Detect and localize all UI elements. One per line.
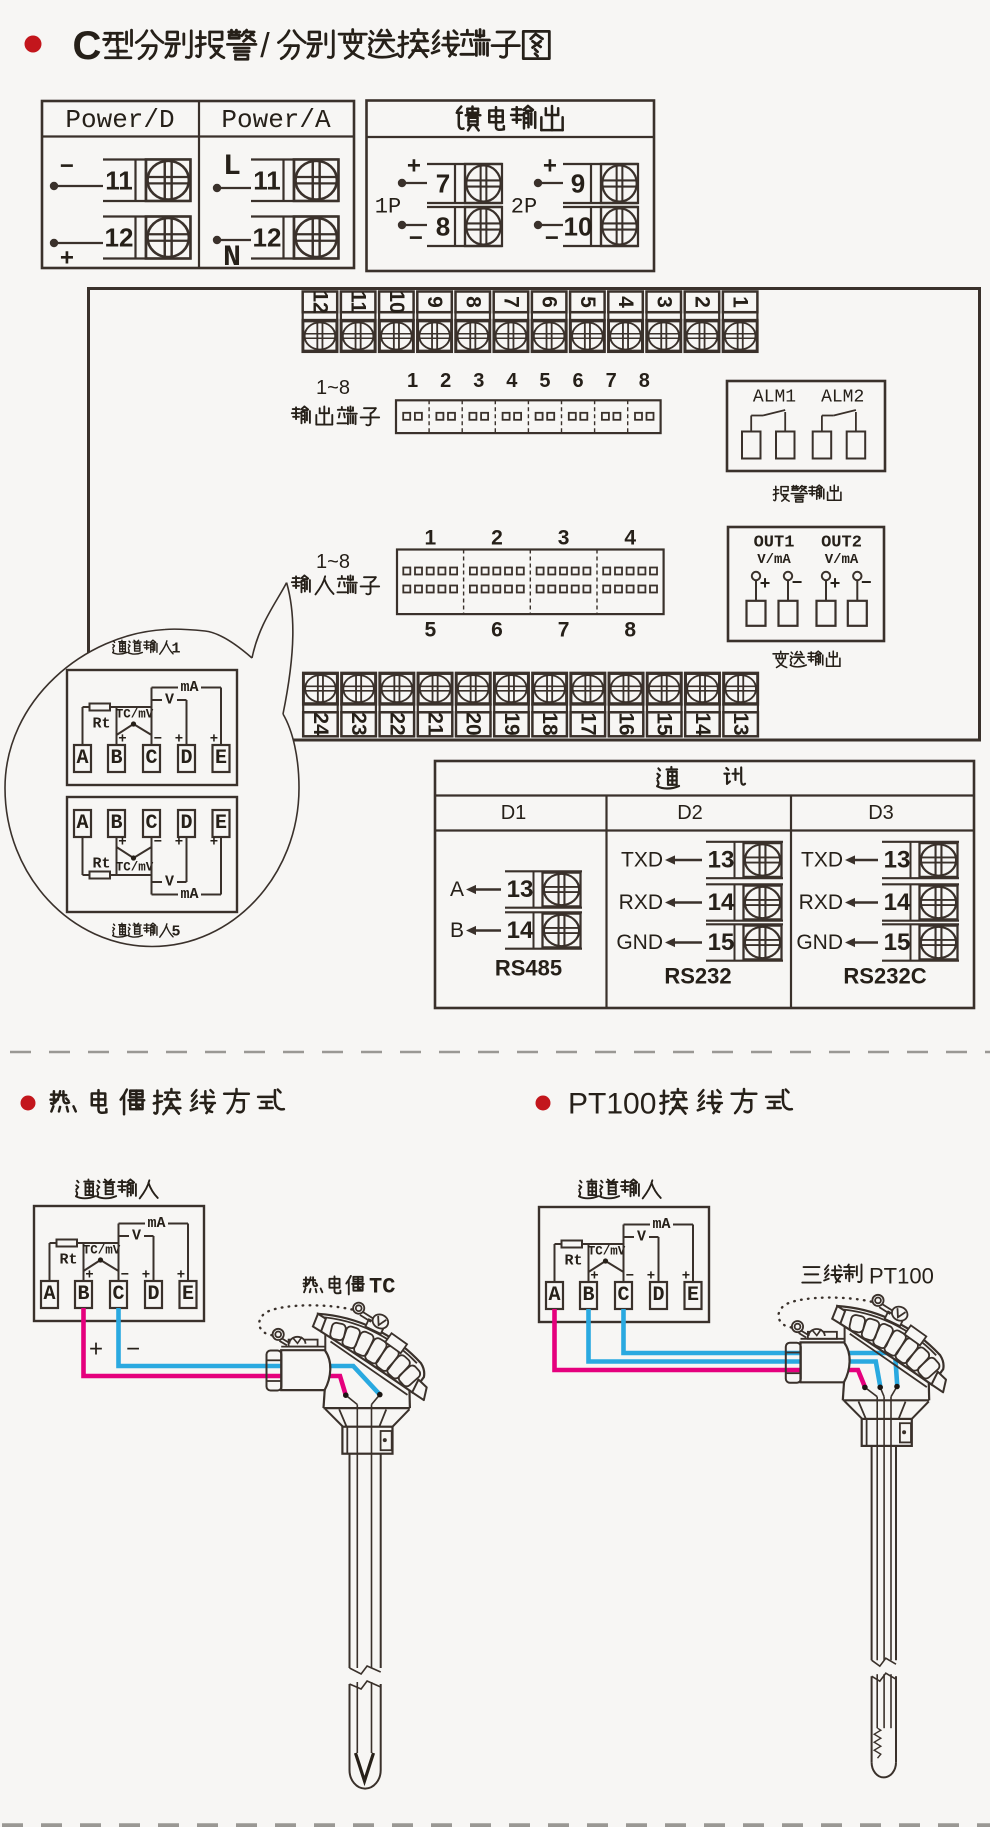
svg-text:22: 22 <box>385 712 408 735</box>
svg-text:5: 5 <box>576 296 599 308</box>
svg-text:8: 8 <box>436 212 450 242</box>
svg-text:15: 15 <box>884 929 911 956</box>
svg-text:14: 14 <box>691 712 714 736</box>
svg-text:PT100: PT100 <box>568 1088 656 1121</box>
svg-text:C: C <box>145 812 157 835</box>
svg-text:TC: TC <box>369 1275 395 1300</box>
svg-text:RXD: RXD <box>799 891 843 914</box>
svg-text:1: 1 <box>424 527 436 550</box>
svg-text:mA: mA <box>147 1215 165 1232</box>
svg-text:8: 8 <box>639 370 650 392</box>
svg-text:V: V <box>132 1228 141 1245</box>
svg-text:A: A <box>76 747 88 770</box>
svg-text:−: − <box>409 227 423 254</box>
svg-text:1: 1 <box>729 296 752 308</box>
svg-text:7: 7 <box>558 619 570 642</box>
svg-text:−: − <box>792 574 803 594</box>
svg-text:RS485: RS485 <box>495 956 562 981</box>
svg-text:OUT2: OUT2 <box>821 534 862 553</box>
svg-text:D: D <box>180 747 192 770</box>
svg-text:5: 5 <box>171 924 180 941</box>
svg-text:TC/mV: TC/mV <box>116 861 154 875</box>
svg-text:+: + <box>60 247 74 274</box>
svg-text:L: L <box>223 150 241 184</box>
svg-text:14: 14 <box>884 889 911 916</box>
svg-text:OUT1: OUT1 <box>754 534 795 553</box>
svg-text:12: 12 <box>253 223 282 253</box>
svg-text:1~8: 1~8 <box>316 377 350 399</box>
svg-text:/: / <box>260 27 270 65</box>
svg-text:8: 8 <box>461 296 484 308</box>
svg-text:PT100: PT100 <box>869 1264 934 1289</box>
svg-text:6: 6 <box>572 370 583 392</box>
svg-text:B: B <box>110 812 122 835</box>
svg-text:2: 2 <box>491 527 503 550</box>
svg-text:E: E <box>215 812 227 835</box>
svg-text:−: − <box>126 1336 140 1363</box>
svg-text:−: − <box>545 227 559 254</box>
svg-text:Rt: Rt <box>564 1253 582 1270</box>
svg-text:V/mA: V/mA <box>757 552 791 568</box>
svg-text:B: B <box>450 919 464 942</box>
svg-text:+: + <box>590 1269 598 1285</box>
svg-text:3: 3 <box>652 296 675 308</box>
svg-text:C: C <box>145 747 157 770</box>
svg-text:7: 7 <box>436 169 450 199</box>
svg-text:13: 13 <box>729 712 752 735</box>
svg-text:D1: D1 <box>501 802 527 824</box>
svg-text:1: 1 <box>171 641 180 658</box>
svg-text:13: 13 <box>507 876 534 903</box>
svg-text:V: V <box>165 692 174 709</box>
svg-text:V: V <box>637 1229 646 1246</box>
svg-text:−: − <box>154 835 162 851</box>
svg-text:23: 23 <box>347 712 370 735</box>
svg-text:15: 15 <box>653 712 676 736</box>
svg-text:E: E <box>215 747 227 770</box>
svg-text:+: + <box>210 732 218 748</box>
svg-text:4: 4 <box>506 370 518 392</box>
svg-text:+: + <box>118 835 126 851</box>
svg-text:−: − <box>121 1268 129 1284</box>
svg-text:4: 4 <box>624 527 636 550</box>
svg-text:RS232: RS232 <box>664 964 731 989</box>
svg-text:2: 2 <box>691 296 714 308</box>
svg-text:+: + <box>118 732 126 748</box>
svg-text:1~8: 1~8 <box>316 551 350 573</box>
svg-text:V: V <box>165 874 174 891</box>
svg-text:9: 9 <box>423 296 446 308</box>
svg-text:E: E <box>182 1283 194 1306</box>
svg-text:5: 5 <box>539 370 550 392</box>
svg-text:12: 12 <box>105 223 134 253</box>
svg-text:+: + <box>682 1269 690 1285</box>
svg-text:A: A <box>548 1284 560 1307</box>
svg-text:TC/mV: TC/mV <box>116 708 154 722</box>
svg-text:3: 3 <box>473 370 484 392</box>
svg-text:+: + <box>85 1268 93 1284</box>
svg-text:2: 2 <box>440 370 451 392</box>
svg-text:15: 15 <box>708 929 735 956</box>
svg-text:RXD: RXD <box>619 891 663 914</box>
svg-text:A: A <box>76 812 88 835</box>
svg-text:20: 20 <box>462 712 485 735</box>
svg-text:mA: mA <box>180 679 198 696</box>
svg-text:9: 9 <box>571 169 585 199</box>
svg-text:6: 6 <box>491 619 503 642</box>
svg-text:19: 19 <box>500 712 523 735</box>
svg-text:V/mA: V/mA <box>825 552 859 568</box>
svg-text:A: A <box>450 878 464 901</box>
svg-text:3: 3 <box>558 527 570 550</box>
svg-text:mA: mA <box>180 886 198 903</box>
svg-text:+: + <box>175 835 183 851</box>
svg-text:D2: D2 <box>677 802 703 824</box>
svg-text:D: D <box>147 1283 159 1306</box>
svg-text:+: + <box>830 575 841 595</box>
svg-text:D: D <box>652 1284 664 1307</box>
svg-text:+: + <box>177 1268 185 1284</box>
svg-text:E: E <box>687 1284 699 1307</box>
svg-text:Rt: Rt <box>92 856 110 873</box>
svg-text:N: N <box>223 241 241 275</box>
svg-text:10: 10 <box>385 290 408 313</box>
svg-text:24: 24 <box>309 712 332 736</box>
svg-text:−: − <box>154 732 162 748</box>
svg-text:ALM1: ALM1 <box>753 388 796 408</box>
svg-text:6: 6 <box>538 296 561 308</box>
svg-text:7: 7 <box>606 370 617 392</box>
svg-text:+: + <box>175 732 183 748</box>
svg-text:ALM2: ALM2 <box>821 388 864 408</box>
svg-text:RS232C: RS232C <box>843 964 926 989</box>
svg-text:17: 17 <box>576 712 599 735</box>
svg-text:8: 8 <box>624 619 636 642</box>
svg-text:13: 13 <box>884 847 911 874</box>
svg-text:B: B <box>582 1284 594 1307</box>
svg-text:−: − <box>626 1269 634 1285</box>
svg-text:2P: 2P <box>511 195 537 220</box>
svg-text:D: D <box>180 812 192 835</box>
svg-text:1: 1 <box>407 370 418 392</box>
svg-text:GND: GND <box>616 931 663 954</box>
svg-text:B: B <box>110 747 122 770</box>
svg-text:C: C <box>617 1284 629 1307</box>
svg-text:10: 10 <box>564 212 593 242</box>
svg-text:14: 14 <box>507 917 534 944</box>
svg-text:A: A <box>43 1283 55 1306</box>
svg-text:13: 13 <box>708 847 735 874</box>
svg-text:5: 5 <box>424 619 436 642</box>
svg-text:C: C <box>112 1283 124 1306</box>
svg-text:Power/D: Power/D <box>65 105 174 135</box>
svg-text:11: 11 <box>347 291 370 314</box>
svg-text:18: 18 <box>538 712 561 736</box>
svg-text:mA: mA <box>652 1216 670 1233</box>
svg-text:Rt: Rt <box>92 716 110 733</box>
svg-text:+: + <box>210 835 218 851</box>
svg-text:11: 11 <box>253 165 281 195</box>
svg-text:+: + <box>142 1268 150 1284</box>
svg-text:14: 14 <box>708 889 735 916</box>
svg-text:Rt: Rt <box>59 1252 77 1269</box>
svg-text:21: 21 <box>424 712 447 736</box>
svg-text:C: C <box>73 24 102 68</box>
svg-text:7: 7 <box>499 296 522 308</box>
svg-text:B: B <box>77 1283 89 1306</box>
svg-text:TC/mV: TC/mV <box>83 1244 121 1258</box>
svg-text:+: + <box>407 155 421 182</box>
svg-text:+: + <box>543 155 557 182</box>
svg-text:1P: 1P <box>375 195 401 220</box>
svg-text:D3: D3 <box>868 802 894 824</box>
svg-text:Power/A: Power/A <box>221 105 331 135</box>
svg-text:4: 4 <box>614 296 637 308</box>
svg-text:+: + <box>647 1269 655 1285</box>
svg-text:GND: GND <box>796 931 843 954</box>
svg-text:+: + <box>760 575 771 595</box>
svg-text:TXD: TXD <box>621 849 663 872</box>
svg-text:12: 12 <box>308 290 331 313</box>
svg-text:TC/mV: TC/mV <box>588 1245 626 1259</box>
svg-text:11: 11 <box>105 165 133 195</box>
svg-text:+: + <box>89 1336 103 1363</box>
svg-text:−: − <box>60 155 74 182</box>
svg-text:TXD: TXD <box>801 849 843 872</box>
svg-text:16: 16 <box>615 712 638 735</box>
svg-text:−: − <box>861 574 872 594</box>
